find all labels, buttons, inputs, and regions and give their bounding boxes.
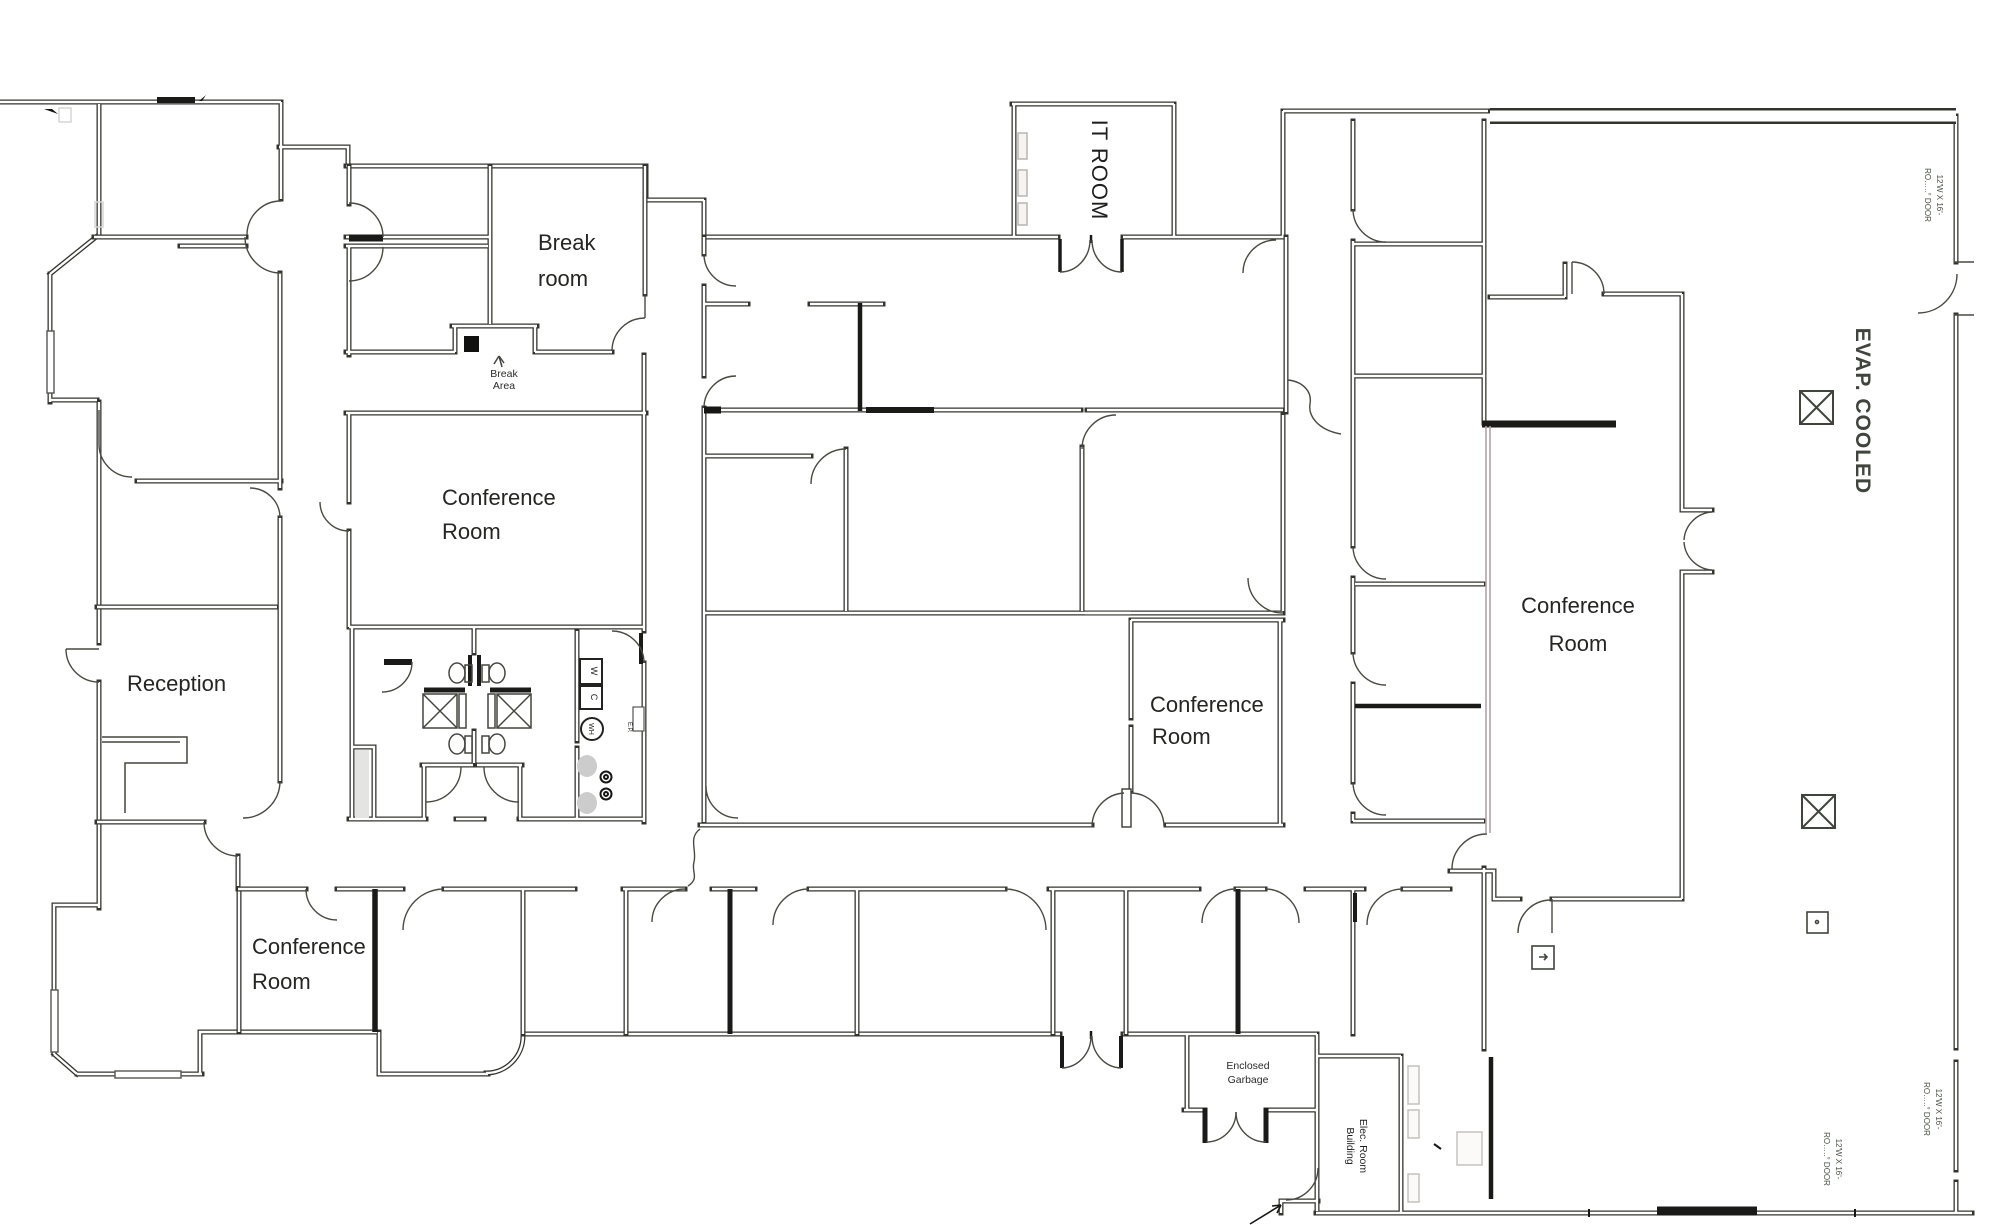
svg-text:Room: Room xyxy=(252,969,311,994)
svg-text:Enclosed: Enclosed xyxy=(1226,1060,1269,1072)
svg-text:Conference: Conference xyxy=(1150,692,1264,717)
svg-text:Break: Break xyxy=(538,230,596,255)
svg-text:WH: WH xyxy=(587,723,594,735)
svg-text:12'W X 16'-: 12'W X 16'- xyxy=(1834,1139,1843,1180)
svg-text:RO…..° DOOR: RO…..° DOOR xyxy=(1822,1132,1831,1186)
svg-text:Break: Break xyxy=(490,368,518,380)
svg-text:C: C xyxy=(589,694,599,701)
svg-text:12'W X 16'-: 12'W X 16'- xyxy=(1935,175,1944,216)
svg-text:Elec. Room: Elec. Room xyxy=(1357,1119,1369,1174)
svg-text:EVAP. COOLED: EVAP. COOLED xyxy=(1851,328,1874,494)
svg-text:Conference: Conference xyxy=(252,934,366,959)
svg-text:RO…..° DOOR: RO…..° DOOR xyxy=(1923,168,1932,222)
svg-text:Area: Area xyxy=(493,380,515,392)
svg-text:room: room xyxy=(538,266,588,291)
svg-text:Conference: Conference xyxy=(442,485,556,510)
svg-text:12'W X 16'-: 12'W X 16'- xyxy=(1934,1089,1943,1130)
svg-text:W: W xyxy=(589,667,599,676)
svg-text:Garbage: Garbage xyxy=(1228,1074,1269,1086)
svg-text:Conference: Conference xyxy=(1521,593,1635,618)
svg-text:Room: Room xyxy=(1152,724,1211,749)
svg-text:Building: Building xyxy=(1344,1127,1356,1165)
svg-text:Room: Room xyxy=(442,519,501,544)
svg-text:E.P.: E.P. xyxy=(626,722,632,733)
svg-text:RO…..° DOOR: RO…..° DOOR xyxy=(1922,1082,1931,1136)
svg-text:IT ROOM: IT ROOM xyxy=(1087,120,1112,221)
svg-text:Reception: Reception xyxy=(127,671,226,696)
svg-text:Room: Room xyxy=(1549,631,1608,656)
